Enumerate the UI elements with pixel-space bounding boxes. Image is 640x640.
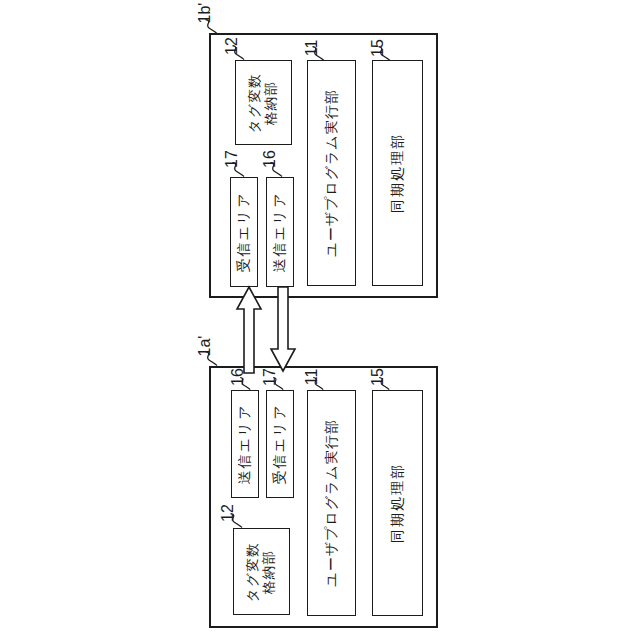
lead-line-squiggle bbox=[311, 46, 325, 61]
block-label: 送信エリア bbox=[271, 192, 289, 273]
lead-line-squiggle bbox=[271, 377, 285, 390]
lead-line-squiggle bbox=[311, 377, 325, 390]
block-label: 受信エリア bbox=[271, 404, 289, 485]
block-label: ユーザプログラム実行部 bbox=[323, 89, 341, 256]
arrow-up-send1a-to-receive1b bbox=[237, 287, 261, 373]
lead-line-squiggle bbox=[204, 351, 218, 366]
block-label: 同期処理部 bbox=[389, 463, 407, 543]
block-label: タグ変数 格納部 bbox=[246, 541, 278, 602]
arrow-down-send1b-to-receive1a bbox=[271, 287, 295, 371]
block-sync-processing-1b: 同期処理部 bbox=[372, 60, 423, 286]
block-label: 受信エリア bbox=[235, 192, 253, 273]
lead-line-squiggle bbox=[229, 513, 243, 528]
lead-line-squiggle bbox=[377, 46, 391, 61]
block-label: 同期処理部 bbox=[389, 133, 407, 213]
block-label: タグ変数 格納部 bbox=[248, 72, 280, 133]
block-send-area-1b: 送信エリア bbox=[266, 177, 294, 287]
patent-figure-canvas: 1b' 12 タグ変数 格納部 17 受信エリア 16 送信エリア 11 bbox=[0, 0, 640, 640]
lead-line-squiggle bbox=[269, 162, 283, 177]
lead-line-squiggle bbox=[231, 162, 245, 177]
lead-line-squiggle bbox=[204, 19, 218, 34]
block-user-program-exec-1b: ユーザプログラム実行部 bbox=[307, 60, 356, 286]
block-tag-variable-storage-1a: タグ変数 格納部 bbox=[233, 528, 290, 615]
block-tag-variable-storage-1b: タグ変数 格納部 bbox=[235, 60, 292, 145]
block-send-area-1a: 送信エリア bbox=[231, 390, 259, 498]
block-receive-area-1a: 受信エリア bbox=[266, 390, 294, 498]
lead-line-squiggle bbox=[377, 377, 391, 390]
block-user-program-exec-1a: ユーザプログラム実行部 bbox=[307, 390, 356, 616]
block-sync-processing-1a: 同期処理部 bbox=[372, 390, 423, 616]
lead-line-squiggle bbox=[231, 45, 245, 60]
block-label: 送信エリア bbox=[236, 404, 254, 485]
block-label: ユーザプログラム実行部 bbox=[323, 419, 341, 586]
block-receive-area-1b: 受信エリア bbox=[230, 177, 258, 287]
lead-line-squiggle bbox=[238, 377, 252, 390]
